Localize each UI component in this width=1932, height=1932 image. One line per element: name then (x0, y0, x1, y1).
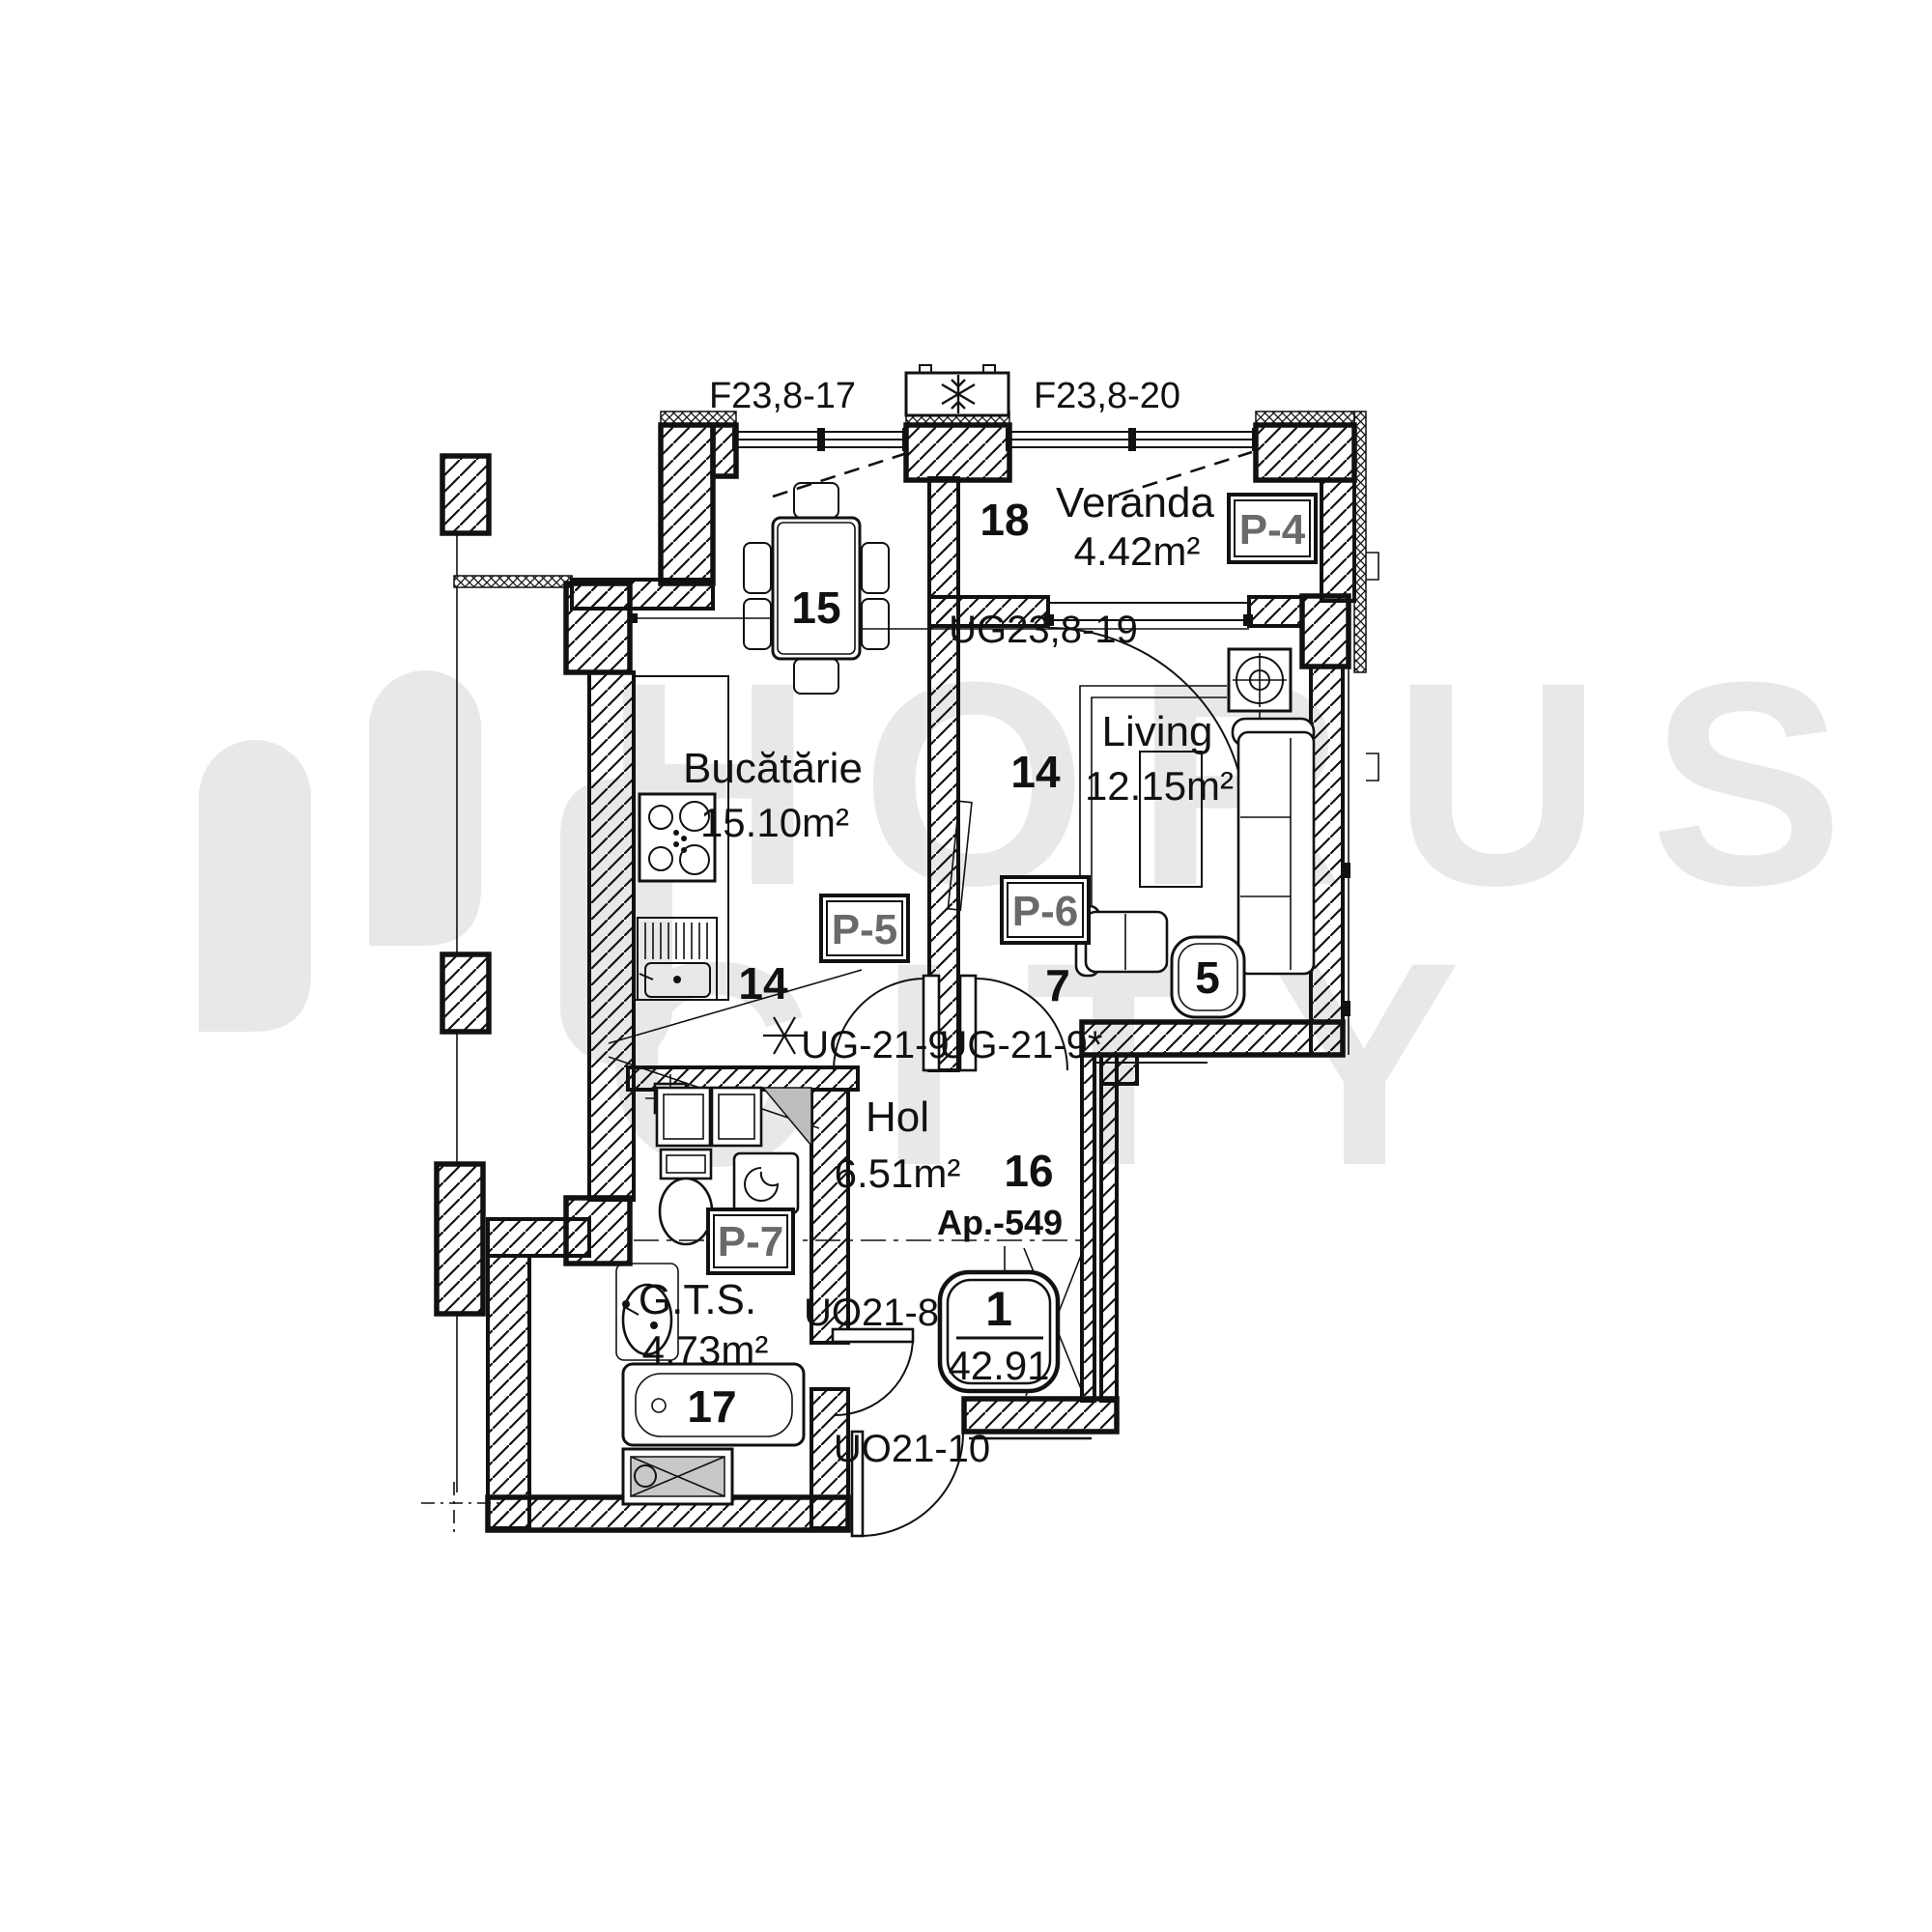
wall-stub (437, 1164, 483, 1314)
room-area-hol: 6.51m² (835, 1151, 961, 1196)
room-name-living: Living (1102, 708, 1213, 755)
room-area-gts: 4.73m² (642, 1327, 769, 1373)
wall-stub (442, 456, 489, 533)
wall-segment (1256, 425, 1354, 480)
panel-p7-label: P-7 (718, 1218, 783, 1265)
panel-p4-label: P-4 (1239, 506, 1306, 554)
room-name-veranda: Veranda (1056, 479, 1214, 526)
zone-number-veranda: 18 (980, 495, 1029, 545)
room-area-veranda: 4.42m² (1074, 528, 1201, 574)
veranda-bottom-wall (1249, 597, 1302, 626)
door-label-veranda-living: UG23,8-19 (949, 609, 1138, 651)
zone-number-gts: 17 (687, 1381, 736, 1432)
apartment-code: Ap.-549 (937, 1203, 1063, 1242)
veranda-right-wall (1321, 480, 1354, 601)
toilet-icon (660, 1150, 712, 1244)
window-label-veranda: F23,8-20 (1034, 376, 1180, 416)
panel-p5: P-5 (821, 895, 908, 961)
panel-p7: P-7 (708, 1209, 793, 1273)
panel-p6: P-6 (1002, 877, 1089, 943)
room-name-hol: Hol (866, 1094, 929, 1141)
floor-plan-svg: HORUS CITY (0, 0, 1932, 1932)
room-name-gts: G.T.S. (639, 1276, 756, 1323)
window-kitchen (732, 428, 908, 497)
wall-segment (488, 1256, 529, 1528)
table-number-kitchen: 15 (791, 582, 840, 633)
door-zone-number-living: 7 (1045, 960, 1070, 1010)
living-right-wall (1311, 667, 1343, 1055)
coffee-table-number: 5 (1195, 952, 1220, 1003)
ac-unit-icon (906, 365, 1009, 415)
door-label-hol-living: UG-21-9* (940, 1024, 1103, 1066)
panel-p6-label: P-6 (1012, 888, 1078, 935)
zone-number-living: 14 (1010, 747, 1061, 797)
room-area-kitchen: 15.10m² (700, 800, 849, 845)
wall-segment (488, 1219, 589, 1256)
floor-plan-page: HORUS CITY (0, 0, 1932, 1932)
panel-p5-label: P-5 (832, 906, 897, 953)
wall-pillar (1302, 596, 1349, 667)
wall-segment (906, 425, 1009, 480)
wall-segment (589, 672, 634, 1200)
shower-tray-icon (623, 1449, 732, 1504)
zone-number-hol: 16 (1004, 1146, 1053, 1196)
room-area-living: 12.15m² (1085, 763, 1234, 809)
wall-segment (1101, 1055, 1137, 1084)
apartment-total-area: 42.91 (948, 1343, 1049, 1388)
washing-machine-icon (734, 1153, 798, 1213)
room-name-kitchen: Bucătărie (683, 745, 863, 792)
door-label-gts: UO21-8 (804, 1292, 939, 1334)
wall-stub (442, 954, 489, 1032)
wall-pillar (566, 583, 630, 672)
door-label-hol-kitchen: UG-21-9 (801, 1024, 949, 1066)
apartment-number: 1 (985, 1282, 1012, 1336)
window-label-kitchen: F23,8-17 (709, 376, 856, 416)
hol-right-wall (1082, 1055, 1094, 1401)
door-label-entrance: UO21-10 (834, 1428, 990, 1470)
entrance-wall (964, 1399, 1117, 1432)
hol-right-wall (1101, 1055, 1117, 1401)
insulation-strip (454, 576, 572, 587)
zone-number-kitchen: 14 (738, 958, 788, 1009)
panel-p4: P-4 (1229, 495, 1316, 562)
living-bottom-wall (1082, 1022, 1343, 1055)
wall-segment (661, 425, 713, 583)
